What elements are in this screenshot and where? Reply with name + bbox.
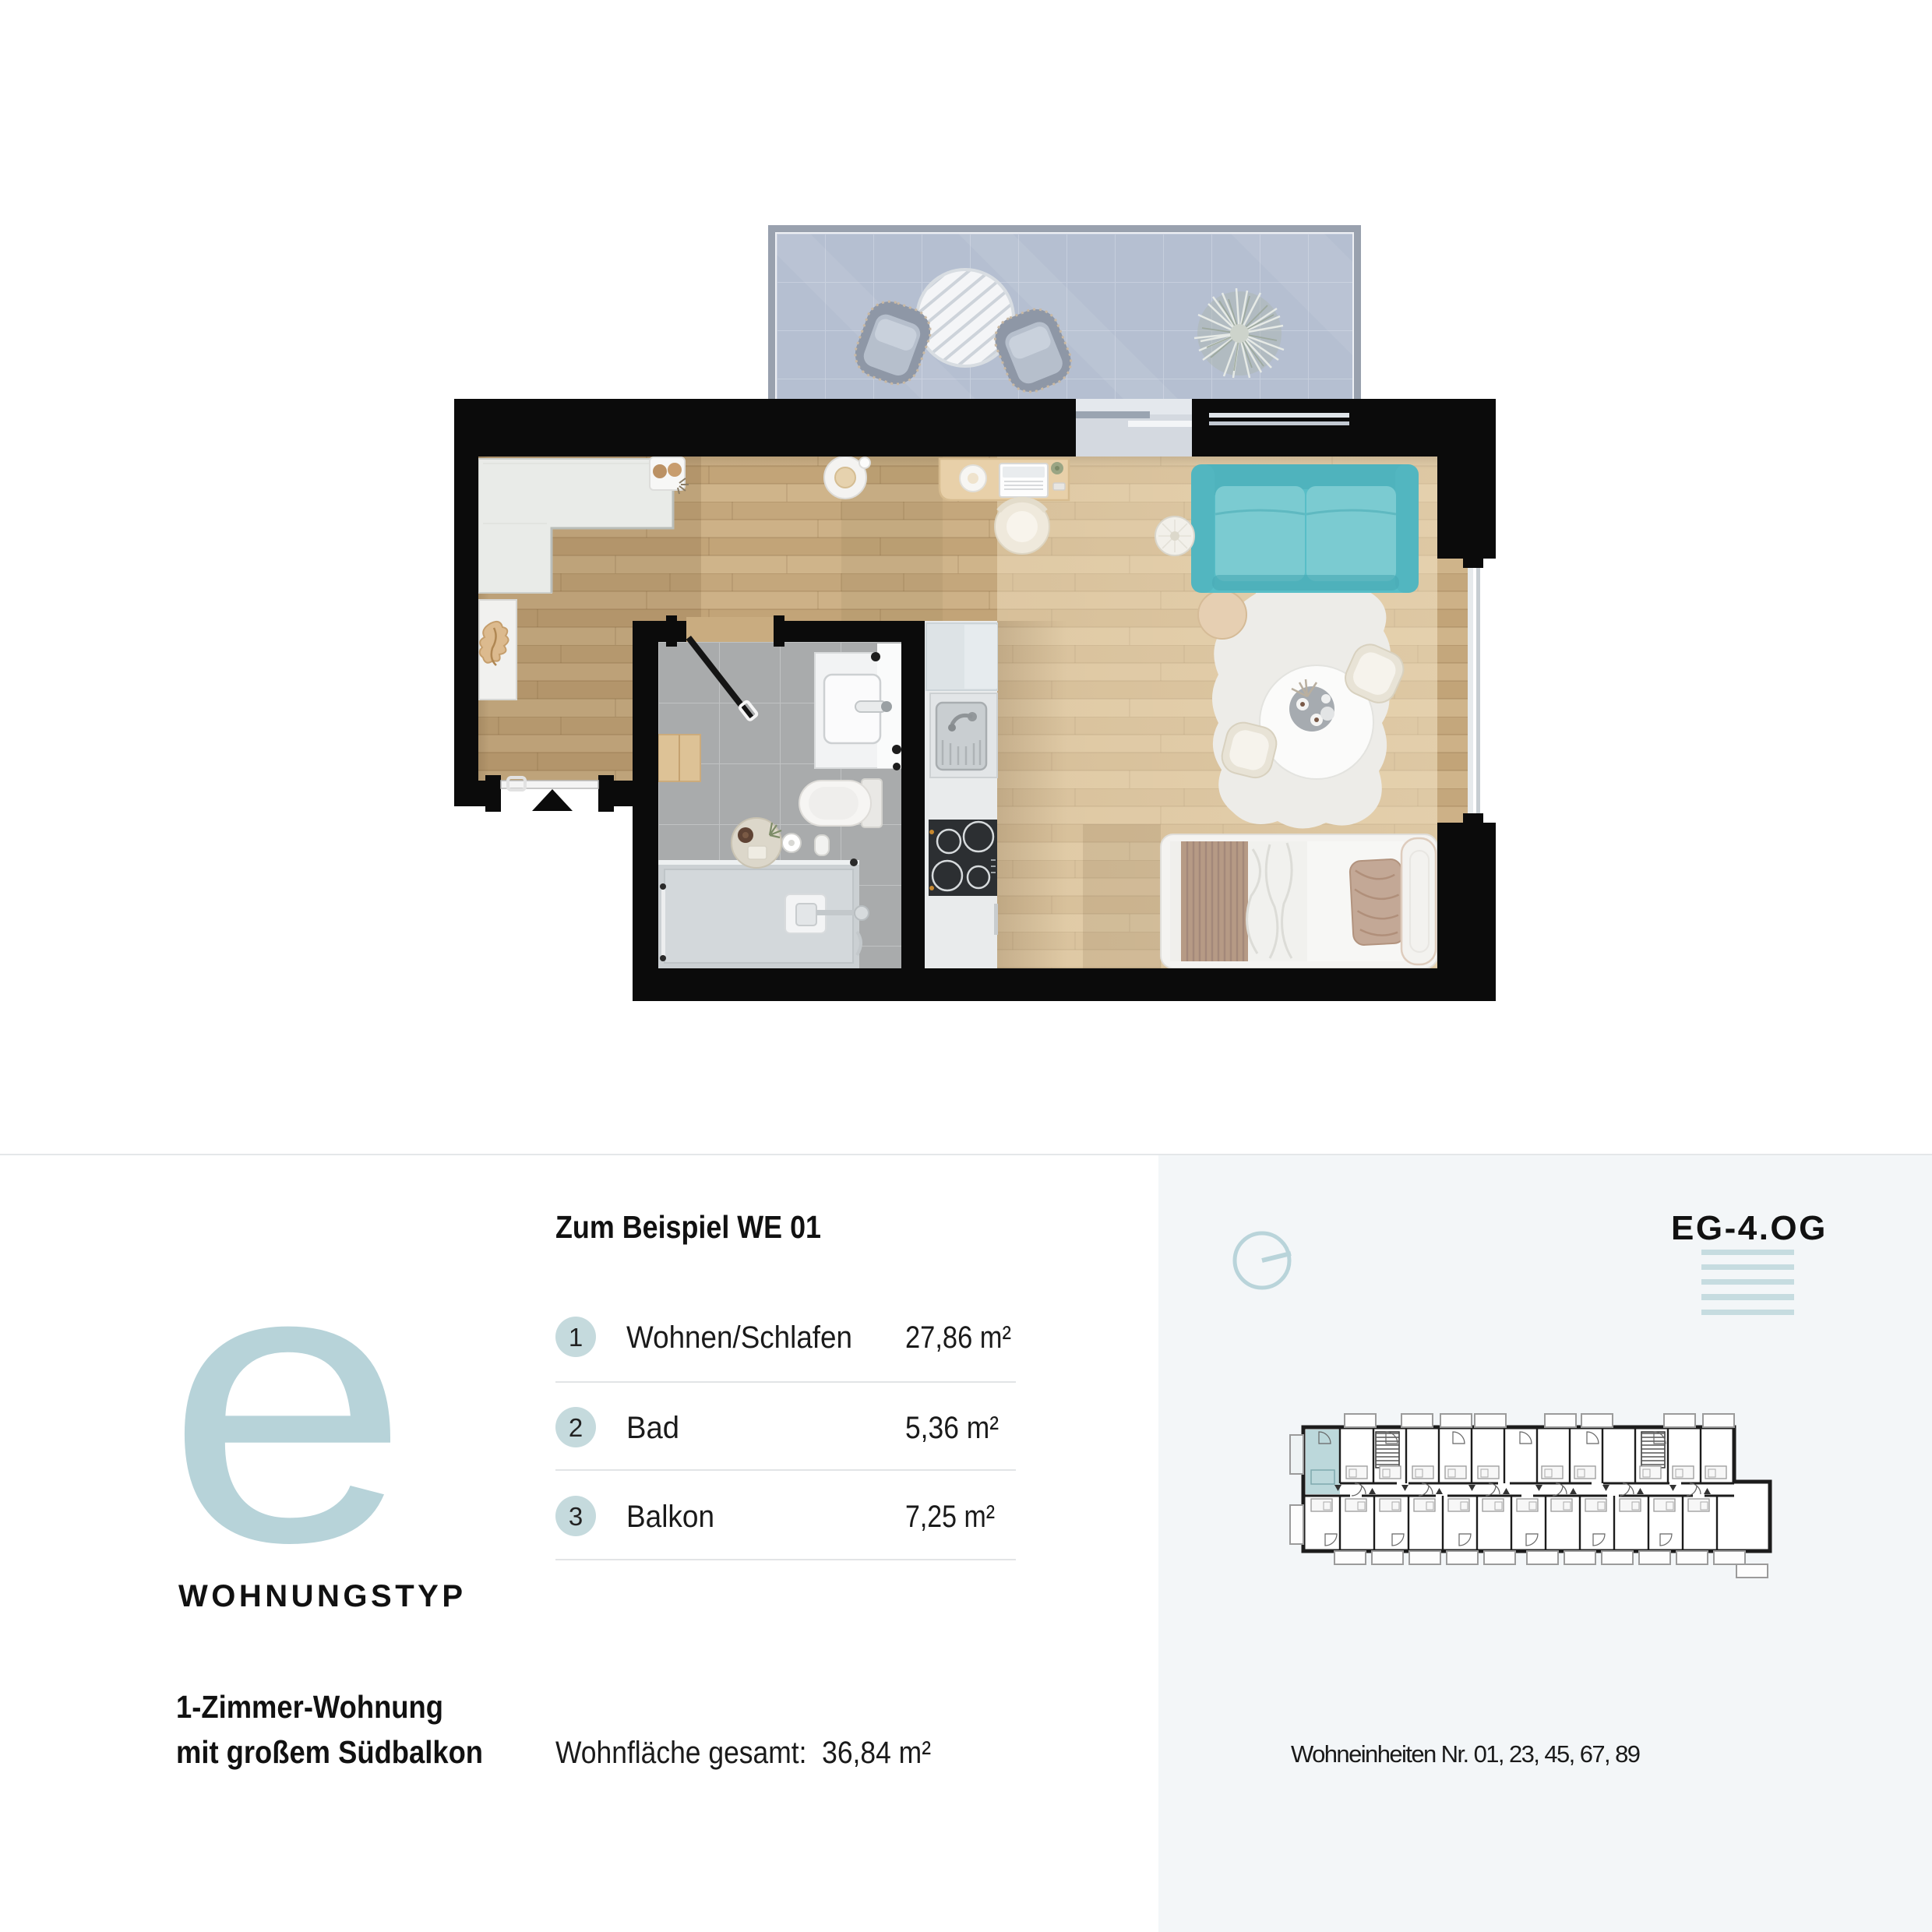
svg-text:Wohnfläche gesamt: 36,84 m²: Wohnfläche gesamt: 36,84 m² <box>555 1736 931 1770</box>
svg-text:EG-4.OG: EG-4.OG <box>1671 1209 1828 1247</box>
svg-text:Wohnen/Schlafen: Wohnen/Schlafen <box>626 1320 852 1355</box>
svg-text:1-Zimmer-Wohnung: 1-Zimmer-Wohnung <box>176 1689 443 1725</box>
svg-text:e: e <box>166 1181 410 1625</box>
svg-text:mit großem Südbalkon: mit großem Südbalkon <box>176 1734 483 1770</box>
svg-text:2: 2 <box>569 1413 583 1442</box>
svg-text:Zum Beispiel WE 01: Zum Beispiel WE 01 <box>555 1209 821 1245</box>
svg-text:5,36 m²: 5,36 m² <box>905 1411 999 1445</box>
svg-text:Balkon: Balkon <box>626 1500 714 1534</box>
svg-text:Bad: Bad <box>626 1411 679 1445</box>
svg-text:Wohneinheiten Nr. 01, 23, 45,: Wohneinheiten Nr. 01, 23, 45, 67, 89 <box>1291 1740 1641 1768</box>
svg-text:3: 3 <box>569 1502 583 1531</box>
svg-text:27,86 m²: 27,86 m² <box>905 1320 1011 1355</box>
svg-text:1: 1 <box>569 1323 583 1352</box>
svg-text:7,25 m²: 7,25 m² <box>905 1500 995 1534</box>
svg-text:WOHNUNGSTYP: WOHNUNGSTYP <box>178 1579 467 1613</box>
